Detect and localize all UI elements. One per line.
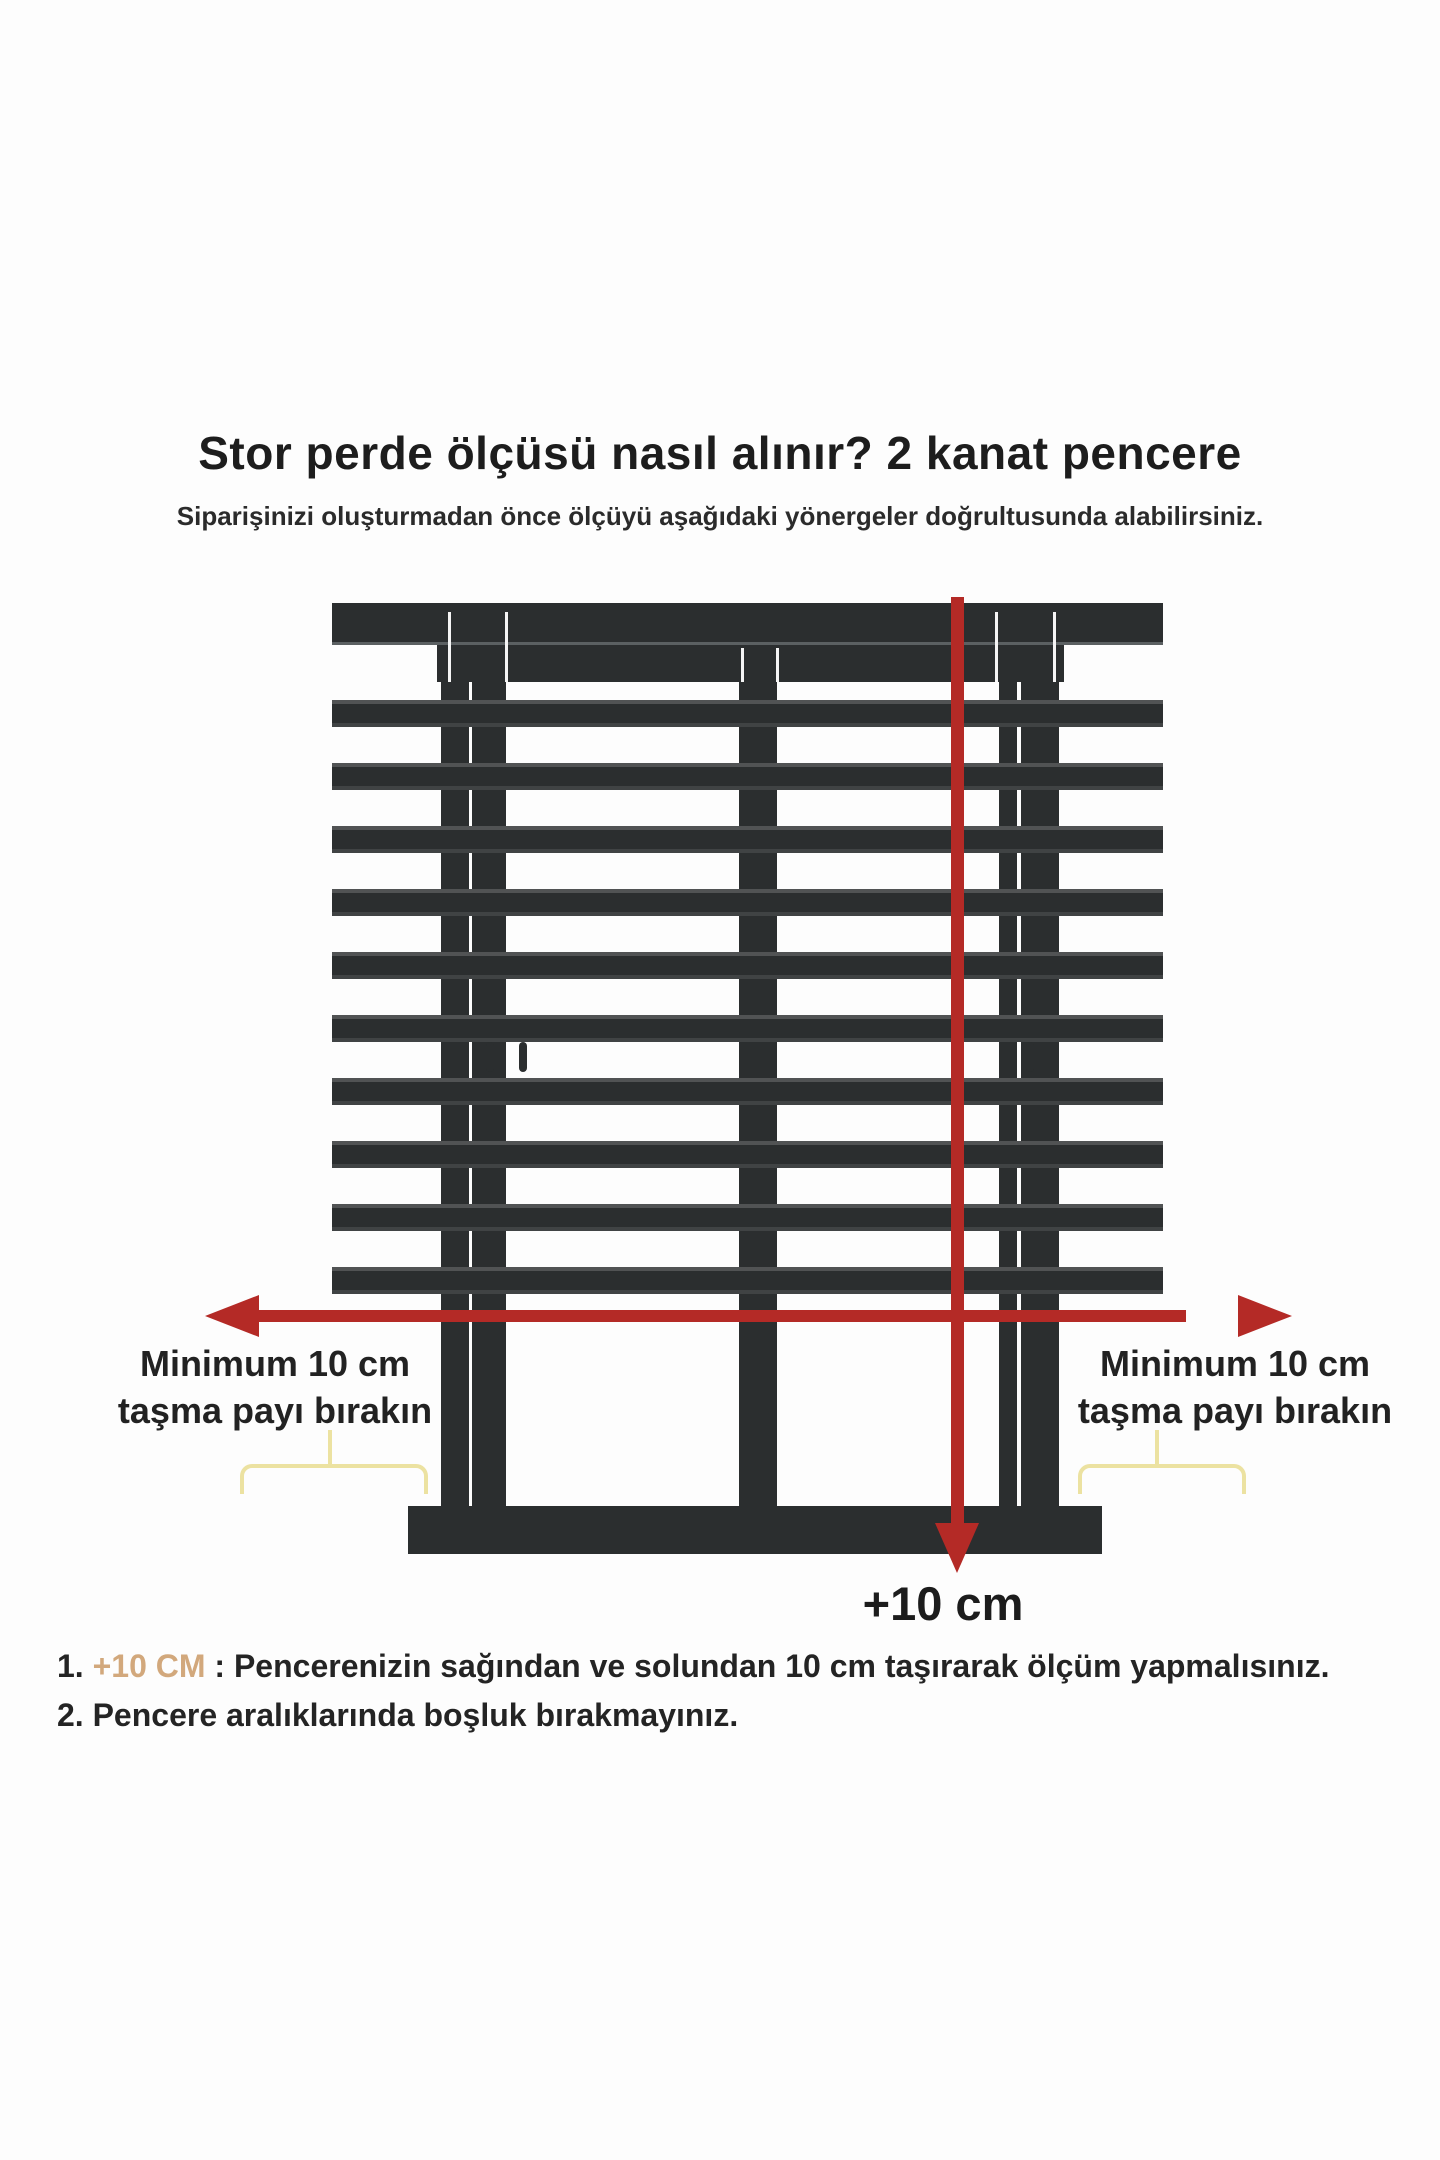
measurement-guide-page: Stor perde ölçüsü nasıl alınır? 2 kanat … [0,0,1440,2160]
notes-list: 1. +10 CM : Pencerenizin sağından ve sol… [57,1642,1387,1740]
blind-tape-slot [741,648,744,682]
window-sill [408,1506,1102,1554]
arrow-left-head-icon [205,1295,259,1337]
arrow-right-head-icon [1238,1295,1292,1337]
blind-tape-slot [505,612,508,682]
blind-tape-slot [448,612,451,682]
blind-cord-tassel [519,1042,527,1072]
blind-slat [332,700,1163,727]
page-title: Stor perde ölçüsü nasıl alınır? 2 kanat … [0,426,1440,480]
right-overhang-bracket [1078,1464,1246,1494]
blind-cord-tassel [1026,1042,1034,1072]
left-overhang-label-line1: Minimum 10 cm [95,1340,455,1387]
blind-headrail [332,603,1163,645]
right-overhang-bracket-stem [1155,1430,1159,1468]
blind-cord-tassel [486,1042,494,1072]
right-overhang-label-line2: taşma payı bırakın [1055,1387,1415,1434]
note-1-text: : Pencerenizin sağından ve solundan 10 c… [206,1648,1330,1684]
note-1: 1. +10 CM : Pencerenizin sağından ve sol… [57,1642,1387,1691]
blind-slat [332,1204,1163,1231]
note-2-text: Pencere aralıklarında boşluk bırakmayını… [93,1697,739,1733]
vertical-measure-arrow-line [951,597,964,1523]
right-overhang-label: Minimum 10 cm taşma payı bırakın [1055,1340,1415,1434]
blind-slat [332,1015,1163,1042]
bottom-arrow-label: +10 cm [793,1576,1093,1631]
blind-bottom-rail [332,1267,1163,1294]
arrow-down-head-icon [935,1523,979,1573]
horizontal-measure-arrow-line [258,1310,1186,1322]
right-overhang-label-line1: Minimum 10 cm [1055,1340,1415,1387]
left-overhang-bracket-stem [328,1430,332,1468]
left-overhang-label: Minimum 10 cm taşma payı bırakın [95,1340,455,1434]
page-subtitle: Siparişinizi oluşturmadan önce ölçüyü aş… [0,501,1440,532]
blind-tape-slot [776,648,779,682]
blind-slat [332,826,1163,853]
left-overhang-bracket [240,1464,428,1494]
blind-slat [332,1141,1163,1168]
blind-slat [332,763,1163,790]
blind-slat [332,889,1163,916]
blind-slat [332,1078,1163,1105]
left-overhang-label-line2: taşma payı bırakın [95,1387,455,1434]
note-2-number: 2. [57,1697,84,1733]
note-2: 2. Pencere aralıklarında boşluk bırakmay… [57,1691,1387,1740]
blind-valance [437,645,1064,682]
blind-tape-slot [1053,612,1056,682]
blind-tape-slot [995,612,998,682]
blind-slat [332,952,1163,979]
note-1-number: 1. [57,1648,84,1684]
note-1-highlight: +10 CM [93,1648,206,1684]
